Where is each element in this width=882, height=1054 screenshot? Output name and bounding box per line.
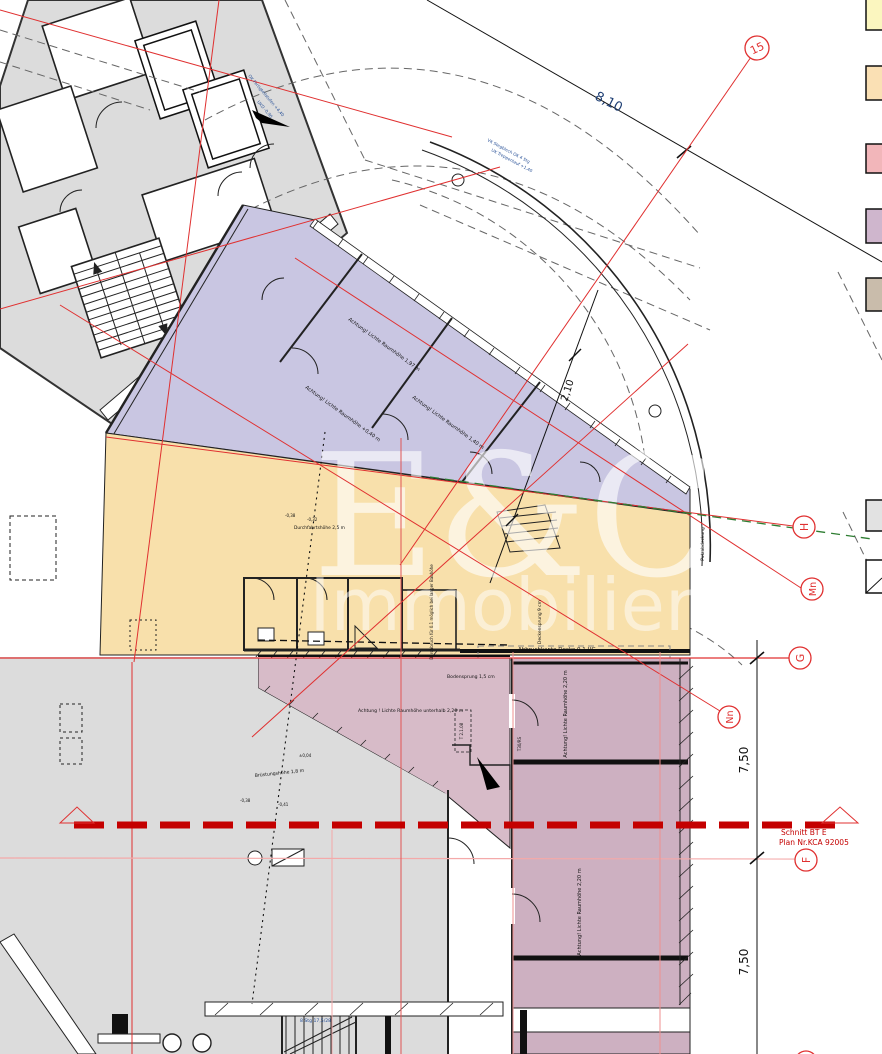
level-mark-038a: -0,38	[285, 513, 296, 518]
dim-text-750a: 7,50	[737, 747, 751, 774]
note-lichte-220-a: Achtung! Lichte Raumhöhe 2,20 m	[563, 670, 569, 757]
mauve-bottom-band	[512, 1008, 690, 1032]
column-circle-1	[163, 1034, 181, 1052]
door-tag-t30rs: T30/RS	[517, 736, 522, 752]
door-gap-2	[509, 888, 515, 924]
bottom-wall-slab-2	[385, 1016, 391, 1054]
note-putzabdeckung: Putzabdeckung	[700, 527, 706, 561]
grid-label-mn: Mn	[808, 582, 819, 596]
column-circle-2	[193, 1034, 211, 1052]
note-lichte-unterhalb: Achtung ! Lichte Raumhöhe unterhalb 2,20…	[358, 708, 464, 714]
note-treppe-stg: 8 Stg 17,5/28	[300, 1018, 331, 1024]
mauve-region	[512, 658, 690, 1054]
legend-swatch-lilac	[866, 209, 882, 243]
legend-swatch-yellow	[866, 0, 882, 30]
watermark-word: Immobilien	[309, 563, 710, 647]
floor-plan-page: E&C Immobilien	[0, 0, 882, 1054]
door-gap-1	[509, 694, 515, 728]
level-mark-032: -0,32	[307, 517, 318, 522]
note-durchfahrt: Durchfahrtshöhe 2,5 m	[294, 525, 345, 531]
mauve-column	[509, 658, 693, 1054]
note-bodensprung: Bodensprung 1,5 cm	[447, 674, 495, 680]
legend-swatch-white	[866, 560, 882, 593]
door-tag-t2108: T 2.1.08	[459, 722, 464, 740]
note-durchbruch: Durchbruch für 0.1 möglich bei langer Ba…	[429, 564, 434, 660]
legend-swatch-orange	[866, 66, 882, 100]
lintel-symbol	[98, 1034, 160, 1043]
grid-label-nn: Nn	[725, 710, 736, 723]
note-deckensprung: Deckensprung 9 cm	[537, 600, 543, 644]
legend	[866, 0, 882, 593]
grid-label-f: F	[800, 857, 813, 863]
note-lichte-220-b: Achtung! Lichte Raumhöhe 2,20 m	[577, 868, 583, 955]
bottom-wall-band	[205, 1002, 503, 1016]
legend-swatch-gray	[866, 500, 882, 531]
legend-swatch-tan	[866, 278, 882, 311]
bottom-wall-slab-3	[520, 1010, 527, 1054]
note-abbruchkante: Abbruchkante Decke 0.1 UG	[518, 647, 596, 653]
level-mark-038b: -0,38	[240, 798, 251, 803]
dim-text-750b: 7,50	[737, 949, 751, 976]
level-mark-004: ±0,04	[299, 753, 312, 758]
level-mark-041: -0,41	[278, 802, 289, 807]
section-text-2: Plan Nr.KCA 92005	[779, 838, 849, 847]
floor-plan-drawing: E&C Immobilien	[0, 0, 882, 1054]
legend-swatch-pink	[866, 144, 882, 173]
section-text-1: Schnitt BT E	[781, 828, 827, 837]
grid-label-h: H	[798, 523, 811, 531]
watermark: E&C Immobilien	[309, 418, 717, 647]
grid-label-g: G	[794, 654, 807, 663]
